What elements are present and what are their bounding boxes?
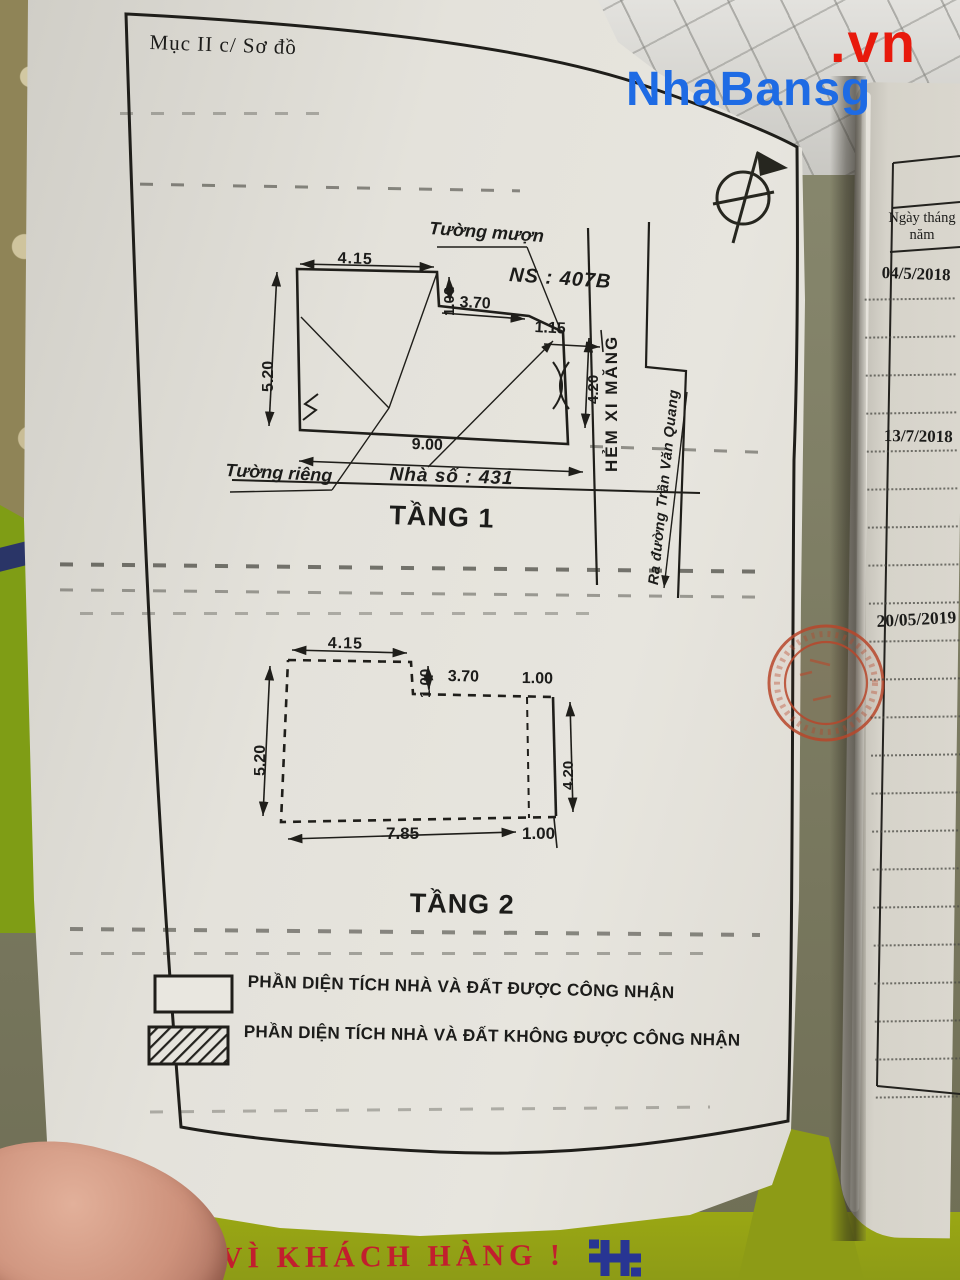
banner-slogan: Á VÌ KHÁCH HÀNG ! <box>182 1239 565 1276</box>
date-entry: 04/5/2018 <box>881 263 951 285</box>
floor1-dim-slant: 1.15 <box>534 319 566 339</box>
floor2-dim-bottom: 7.85 <box>386 824 419 844</box>
floor2-dim-notch-right: 1.00 <box>522 670 553 689</box>
floor1-dim-notch-height: 1.00 <box>441 287 458 316</box>
page-gap-shadow <box>830 76 866 1241</box>
floor1-street-house-label: Nhà số : 431 <box>389 464 514 490</box>
floor2-dim-notch-height: 1.00 <box>417 669 434 698</box>
floor2-title: TẦNG 2 <box>409 888 515 921</box>
floor1-dim-notch-width: 3.70 <box>459 294 491 314</box>
noise-streak <box>80 612 600 615</box>
alley-label: HẺM XI MĂNG <box>602 335 622 472</box>
floor1-title: TẦNG 1 <box>389 500 495 535</box>
floor2-dim-notch-width: 3.70 <box>448 668 479 687</box>
watermark-brand: NhaBansg <box>626 62 871 117</box>
floor2-dim-left: 5.20 <box>252 745 270 776</box>
date-entry: 20/05/2019 <box>876 607 957 632</box>
photo-of-floorplan-document: Á VÌ KHÁCH HÀNG ! <box>0 0 960 1280</box>
floor2-dim-top: 4.15 <box>328 635 363 654</box>
date-table-header: Ngày tháng năm <box>886 210 958 245</box>
floor1-dim-top: 4.15 <box>337 250 373 269</box>
noise-streak <box>70 952 710 955</box>
date-entry: 13/7/2018 <box>884 426 953 447</box>
date-dotted-lines <box>864 261 960 1100</box>
floor2-dim-right: 4.20 <box>560 761 577 790</box>
noise-streak <box>120 112 320 115</box>
document-page <box>0 0 960 1280</box>
floor1-dim-left: 5.20 <box>260 361 278 392</box>
section-label: Mục II c/ Sơ đồ <box>149 30 297 60</box>
floor2-dim-bottom-right: 1.00 <box>522 824 555 844</box>
floor1-dim-bottom: 9.00 <box>411 436 443 455</box>
floor1-dim-right: 4.20 <box>585 375 602 404</box>
blue-ornament <box>583 1236 647 1280</box>
